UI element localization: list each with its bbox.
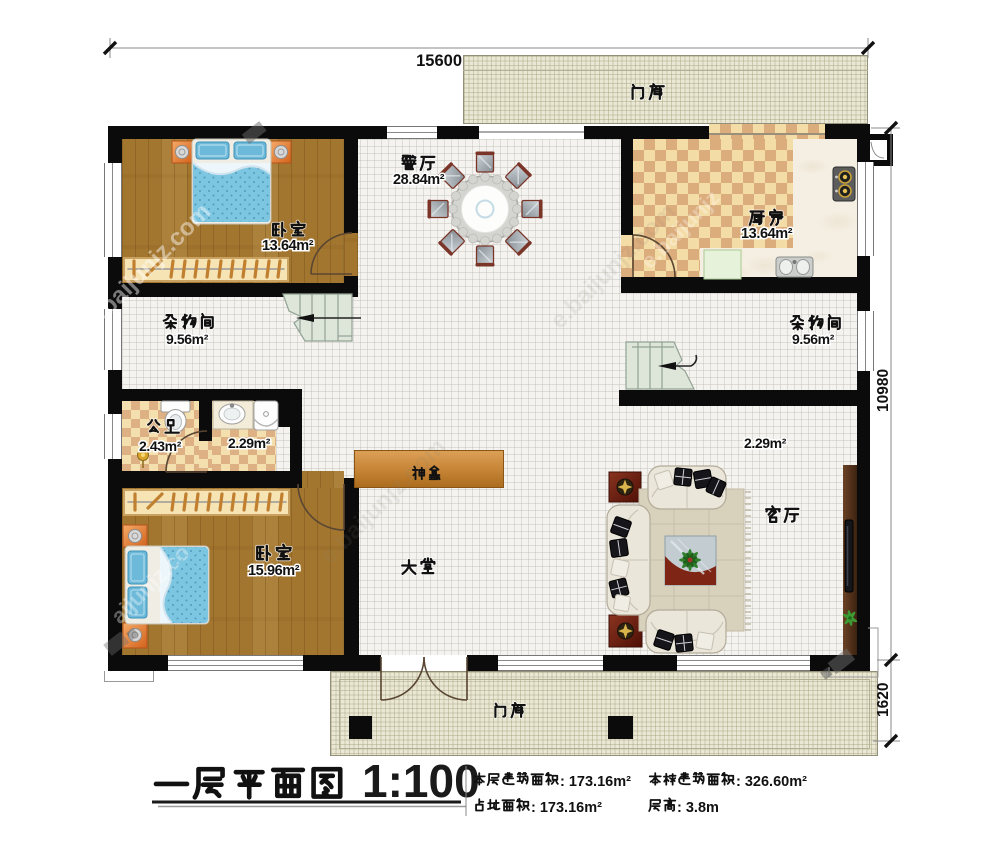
- svg-text:13.64m²: 13.64m²: [741, 226, 793, 242]
- svg-text:: 173.16m²: : 173.16m²: [531, 800, 602, 816]
- svg-text:: 173.16m²: : 173.16m²: [560, 774, 631, 790]
- svg-text:1:100: 1:100: [362, 755, 480, 807]
- svg-text:: 326.60m²: : 326.60m²: [736, 774, 807, 790]
- svg-text:9.56m²: 9.56m²: [792, 331, 835, 347]
- svg-text:: 3.8m: : 3.8m: [677, 800, 719, 816]
- svg-text:15600: 15600: [416, 52, 462, 70]
- svg-text:1620: 1620: [875, 683, 892, 717]
- svg-text:10980: 10980: [875, 369, 892, 412]
- svg-text:13.64m²: 13.64m²: [262, 238, 314, 254]
- svg-text:2.43m²: 2.43m²: [139, 438, 182, 454]
- svg-text:2.29m²: 2.29m²: [744, 435, 787, 451]
- svg-text:28.84m²: 28.84m²: [393, 172, 445, 188]
- svg-text:e.baijunjz.com: e.baijunjz.com: [315, 433, 451, 569]
- svg-text:9.56m²: 9.56m²: [166, 331, 209, 347]
- svg-text:15.96m²: 15.96m²: [248, 563, 300, 579]
- svg-text:2.29m²: 2.29m²: [228, 435, 271, 451]
